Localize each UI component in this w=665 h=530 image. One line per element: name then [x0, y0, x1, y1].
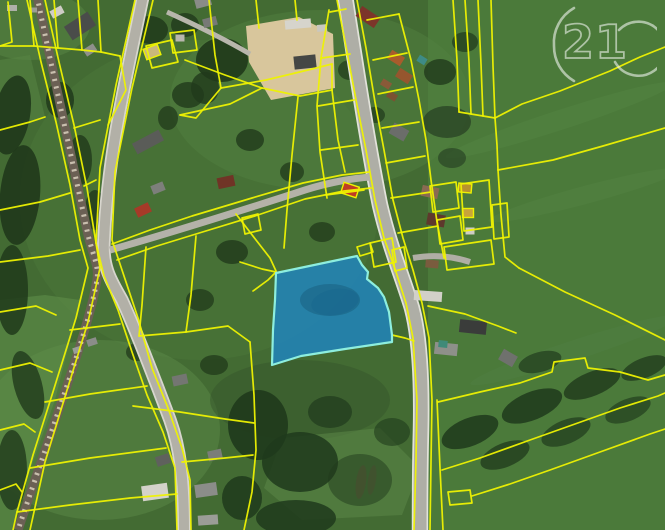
building — [198, 514, 219, 525]
aerial-map-canvas — [0, 0, 665, 530]
building — [414, 290, 443, 302]
building — [176, 35, 185, 42]
building — [293, 54, 316, 69]
building — [425, 259, 439, 268]
building — [438, 340, 448, 348]
building — [463, 209, 474, 218]
satellite-map-view: 21 — [0, 0, 665, 530]
